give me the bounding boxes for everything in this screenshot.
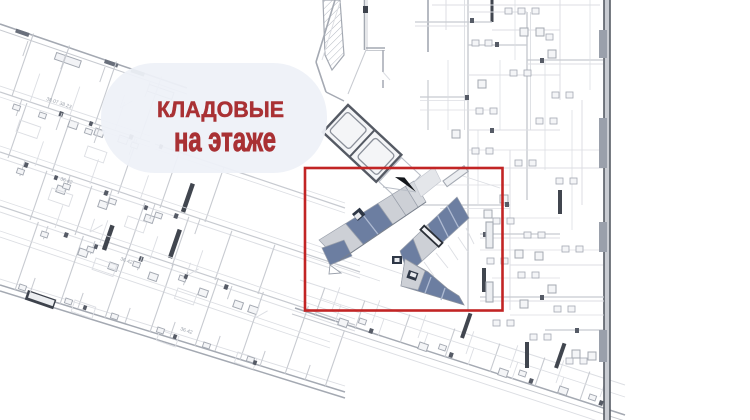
svg-text:на этаже: на этаже (174, 121, 276, 159)
svg-text:КЛАДОВЫЕ: КЛАДОВЫЕ (157, 97, 284, 122)
